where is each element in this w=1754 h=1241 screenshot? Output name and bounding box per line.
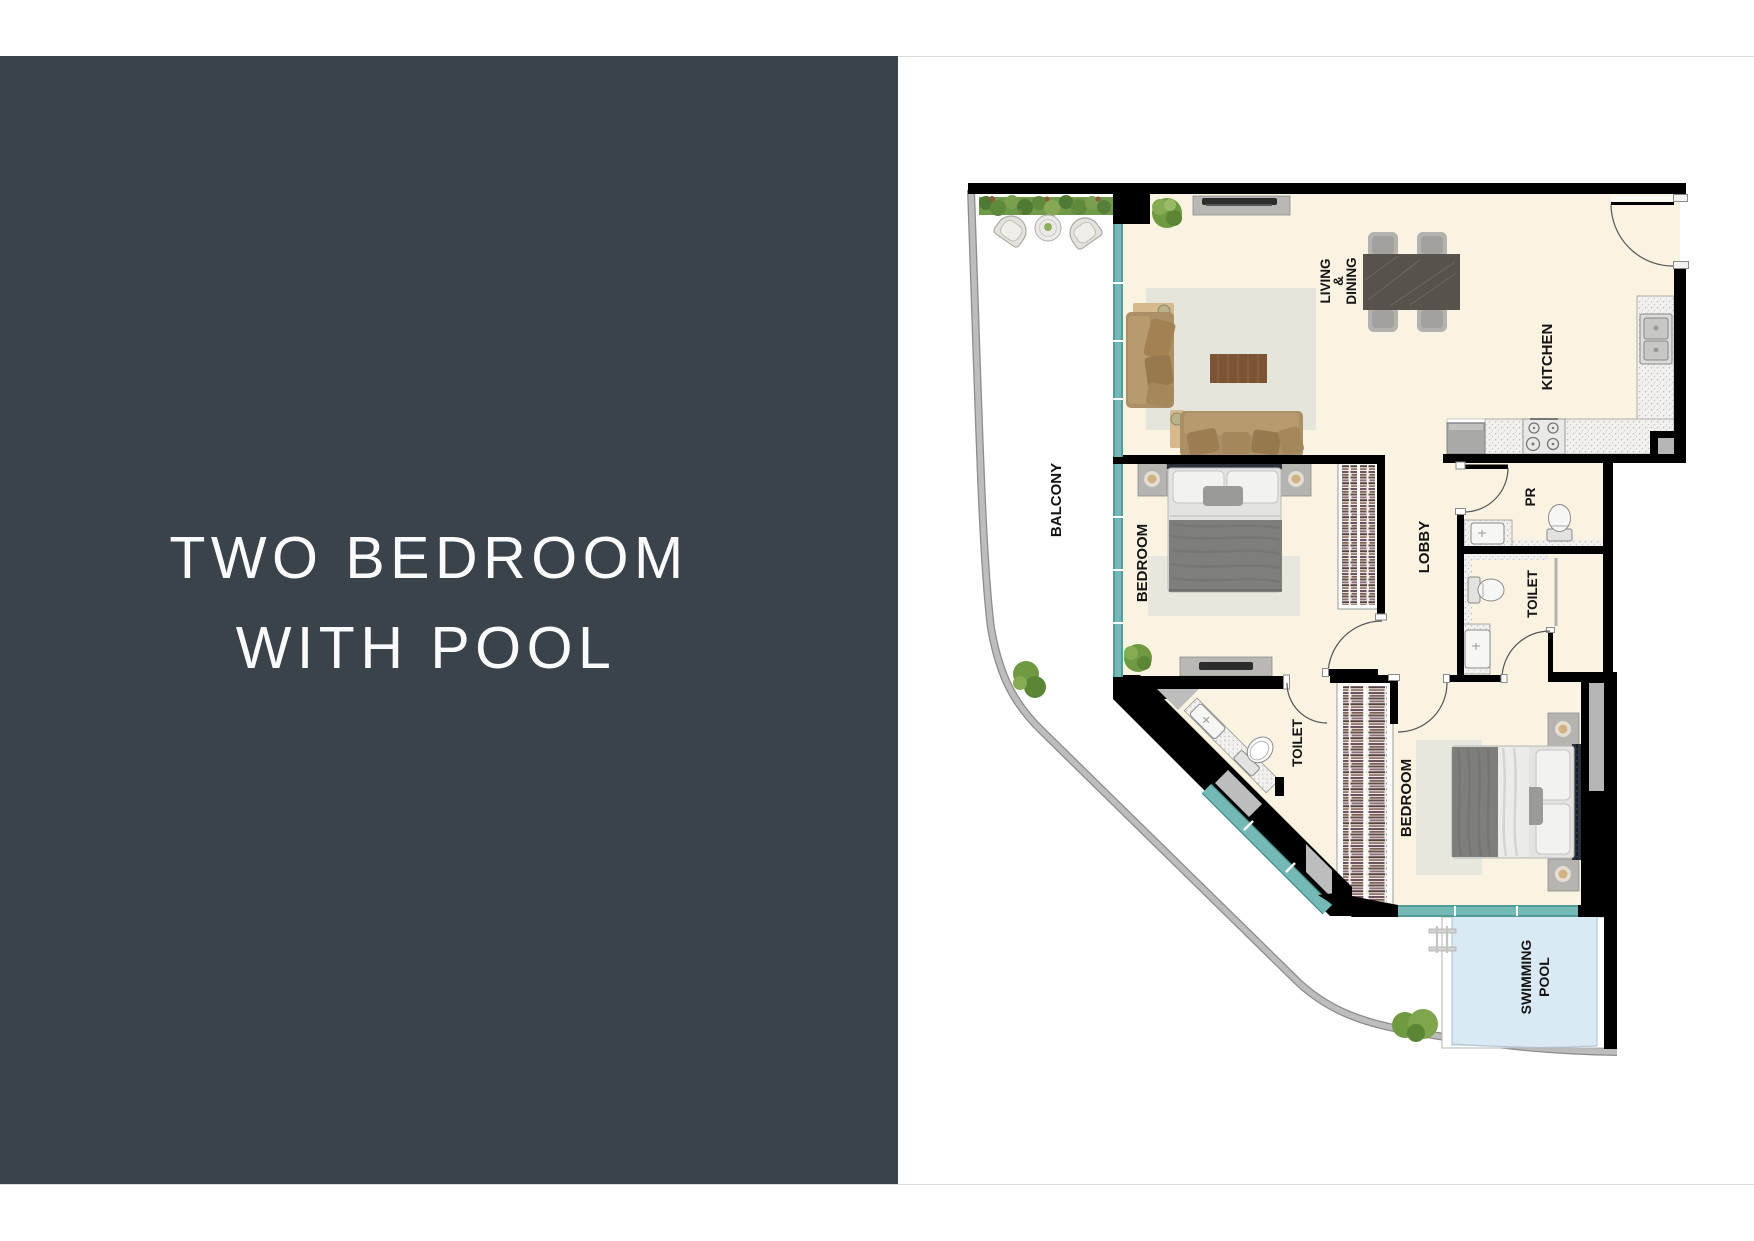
svg-text:LOBBY: LOBBY (1416, 521, 1433, 574)
svg-text:SWIMMING: SWIMMING (1518, 940, 1534, 1015)
svg-text:POOL: POOL (1536, 957, 1552, 997)
svg-text:DINING: DINING (1344, 257, 1359, 304)
svg-text:TOILET: TOILET (1290, 718, 1305, 767)
svg-text:PR: PR (1523, 487, 1538, 506)
svg-text:BALCONY: BALCONY (1048, 463, 1065, 537)
svg-text:TOILET: TOILET (1525, 569, 1540, 618)
svg-text:BEDROOM: BEDROOM (1398, 759, 1415, 837)
svg-text:BEDROOM: BEDROOM (1134, 524, 1151, 602)
svg-text:KITCHEN: KITCHEN (1539, 324, 1556, 391)
